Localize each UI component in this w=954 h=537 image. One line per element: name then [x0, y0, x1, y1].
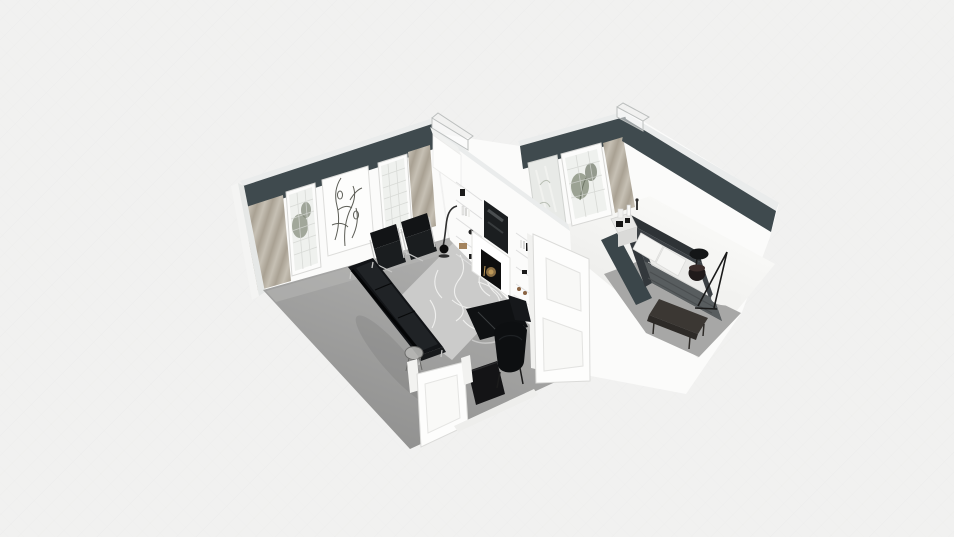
interior-door-main[interactable] — [527, 233, 590, 383]
floorplan-canvas[interactable] — [0, 0, 954, 537]
grid-window-left[interactable] — [286, 183, 321, 276]
floorplan-viewport[interactable] — [0, 0, 954, 537]
lamp-shade — [440, 245, 449, 254]
botanical-panel[interactable] — [322, 166, 374, 256]
